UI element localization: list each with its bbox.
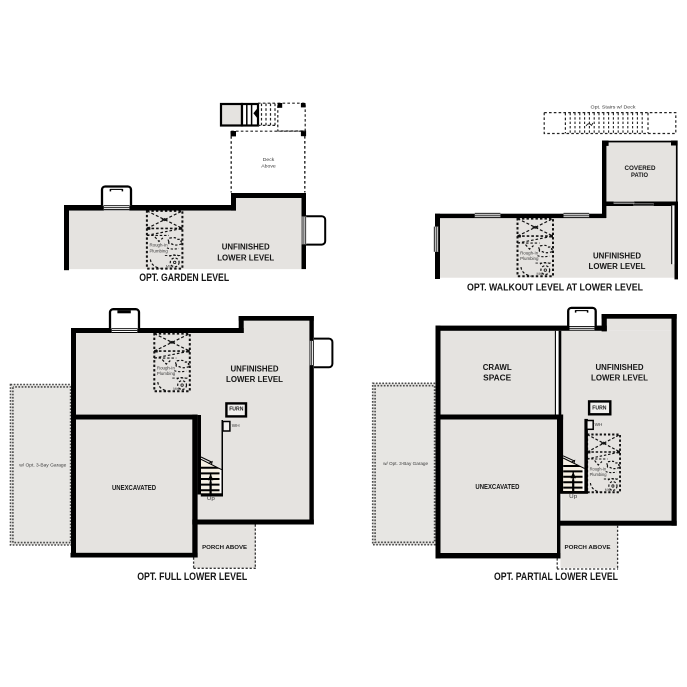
svg-text:PATIO: PATIO [631, 173, 648, 179]
svg-text:WH: WH [232, 423, 240, 429]
svg-text:WH: WH [595, 422, 603, 428]
svg-text:w/ Opt. 3-Bay Garage: w/ Opt. 3-Bay Garage [19, 462, 66, 468]
svg-text:UNFINISHED: UNFINISHED [593, 251, 641, 260]
svg-text:Up: Up [207, 496, 215, 502]
svg-text:LOWER LEVEL: LOWER LEVEL [589, 262, 646, 271]
svg-text:PORCH ABOVE: PORCH ABOVE [565, 545, 611, 551]
svg-text:UNEXCAVATED: UNEXCAVATED [112, 483, 156, 492]
svg-text:COVERED: COVERED [625, 166, 657, 172]
svg-text:FURN: FURN [592, 405, 606, 411]
svg-text:Above: Above [261, 163, 276, 169]
svg-text:OPT. FULL LOWER LEVEL: OPT. FULL LOWER LEVEL [137, 571, 247, 583]
svg-text:Deck: Deck [263, 157, 275, 163]
svg-text:LOWER LEVEL: LOWER LEVEL [226, 375, 283, 384]
svg-text:UNFINISHED: UNFINISHED [231, 365, 279, 374]
svg-text:Opt. Stairs w/ Deck: Opt. Stairs w/ Deck [591, 105, 637, 111]
svg-text:UNFINISHED: UNFINISHED [596, 363, 644, 372]
svg-text:w/ Opt. 3-Bay Garage: w/ Opt. 3-Bay Garage [383, 461, 428, 467]
svg-text:OPT. WALKOUT LEVEL AT LOWER LE: OPT. WALKOUT LEVEL AT LOWER LEVEL [467, 281, 643, 293]
svg-text:LOWER LEVEL: LOWER LEVEL [217, 253, 274, 262]
svg-text:FURN: FURN [229, 407, 243, 413]
svg-text:PORCH ABOVE: PORCH ABOVE [202, 545, 247, 551]
svg-text:UNFINISHED: UNFINISHED [222, 243, 270, 252]
svg-text:OPT. GARDEN LEVEL: OPT. GARDEN LEVEL [139, 272, 229, 284]
svg-text:SPACE: SPACE [483, 373, 512, 382]
svg-text:CRAWL: CRAWL [483, 363, 512, 372]
svg-text:UNEXCAVATED: UNEXCAVATED [475, 482, 519, 491]
svg-text:LOWER LEVEL: LOWER LEVEL [591, 373, 648, 382]
svg-text:Up: Up [569, 494, 577, 500]
svg-text:OPT. PARTIAL LOWER LEVEL: OPT. PARTIAL LOWER LEVEL [494, 571, 618, 583]
